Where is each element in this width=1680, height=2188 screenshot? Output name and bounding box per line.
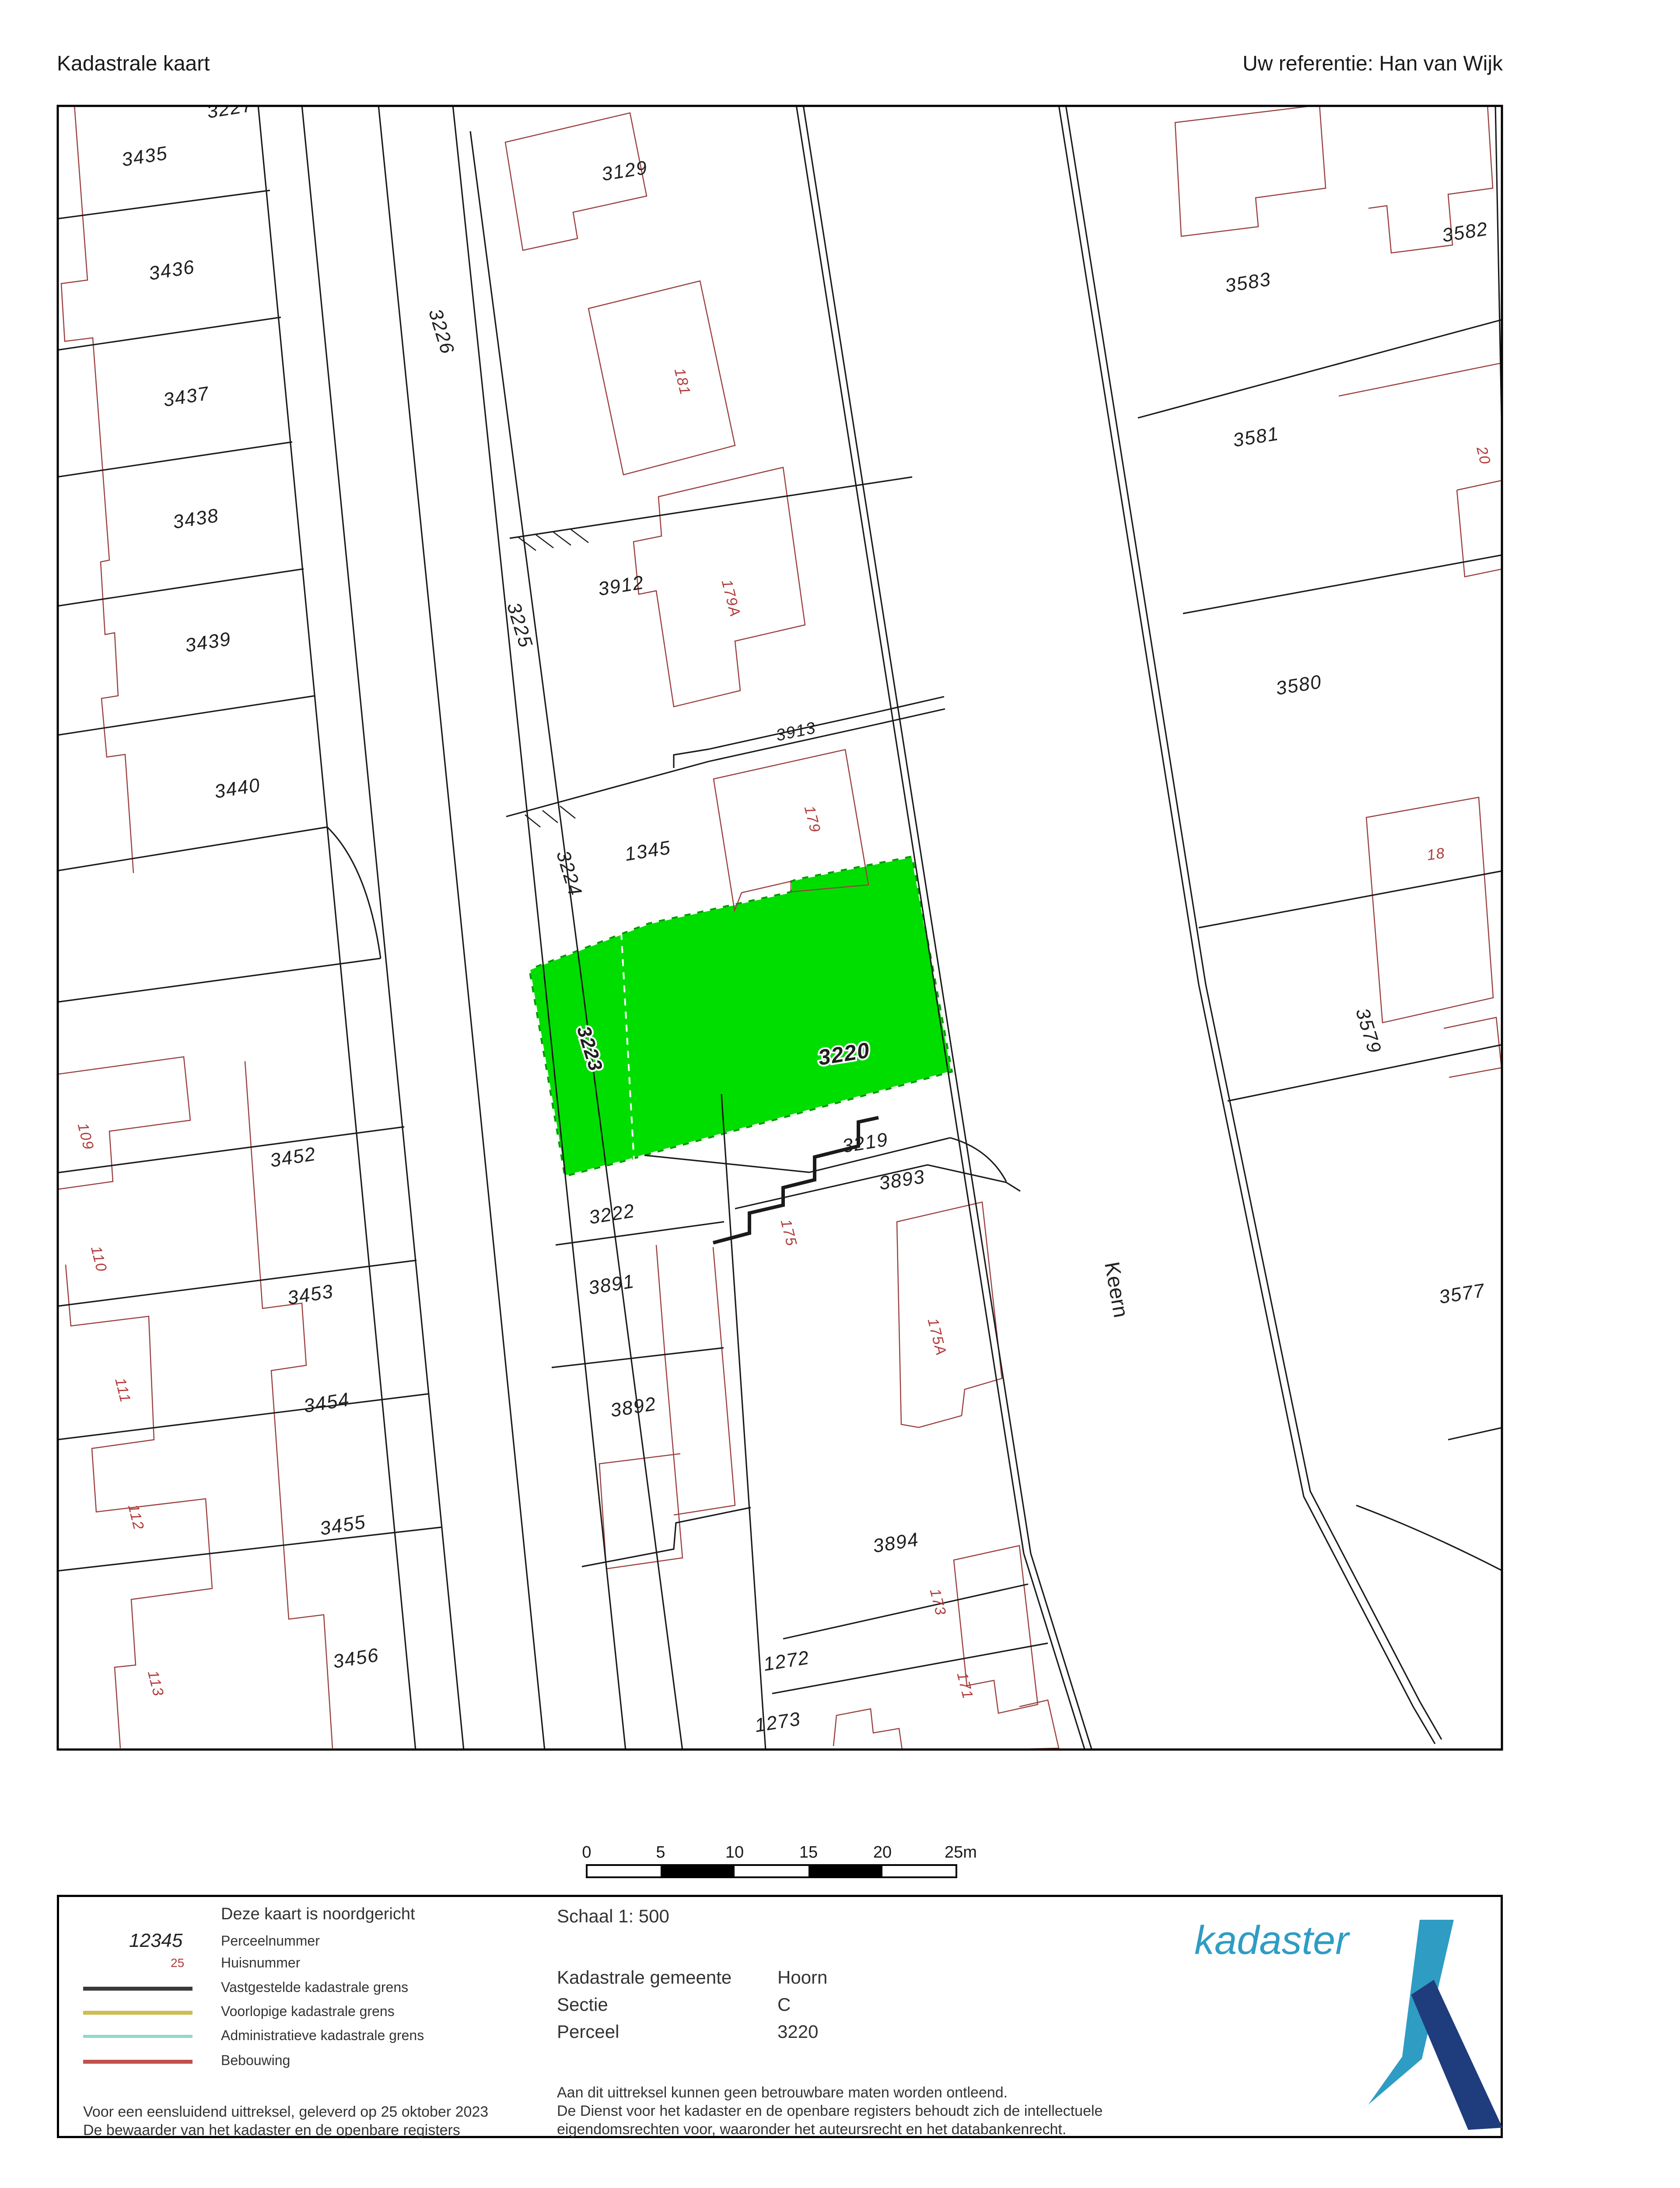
- parcel-number-label: 3222: [588, 1200, 637, 1228]
- logo-mark-blue: [1411, 1980, 1503, 2130]
- cadastral-extract-page: { "header": { "title": "Kadastrale kaart…: [0, 0, 1680, 2188]
- street-name-label: Keern: [1100, 1260, 1132, 1319]
- parcel-field-label: Perceel: [557, 2021, 619, 2042]
- parcel-number-label: 1345: [623, 837, 672, 865]
- parcel-number-label: 1273: [753, 1708, 802, 1736]
- parcel-number-label: 3893: [878, 1166, 927, 1194]
- house-number-label: 18: [1426, 845, 1446, 863]
- house-number-label: 113: [144, 1669, 167, 1699]
- legend-box: Deze kaart is noordgericht 12345 Perceel…: [57, 1895, 1503, 2138]
- section-value: C: [777, 1994, 791, 2015]
- kadaster-logo-svg: kadaster: [1170, 1906, 1503, 2138]
- house-number-label: 112: [125, 1503, 147, 1532]
- provisional-boundary-label: Voorlopige kadastrale grens: [221, 2003, 395, 2020]
- house-number-label: 109: [74, 1121, 97, 1152]
- parcel-number-sample: 12345: [129, 1930, 182, 1952]
- house-number-label: 175A: [924, 1316, 950, 1357]
- parcel-number-label: 3226: [424, 306, 458, 357]
- scale-tick-label: 5: [656, 1843, 665, 1862]
- issued-line2: De bewaarder van het kadaster en de open…: [83, 2122, 460, 2139]
- parcel-number-label: 3912: [597, 572, 646, 600]
- parcel-number-label: 3454: [302, 1389, 351, 1417]
- parcel-number-label: 3453: [286, 1280, 335, 1309]
- established-boundary-label: Vastgestelde kadastrale grens: [221, 1979, 408, 1995]
- house-number-label: 173: [927, 1587, 949, 1617]
- scale-tick-label: 20: [873, 1843, 892, 1862]
- parcel-number-label: 3892: [609, 1393, 658, 1421]
- parcel-number-label: 3452: [269, 1143, 318, 1171]
- parcel-number-label: 3439: [184, 628, 233, 656]
- parcel-number-label: 3580: [1274, 671, 1323, 699]
- scale-tick-label: 10: [725, 1843, 744, 1862]
- disclaimer-line2: De Dienst voor het kadaster en de openba…: [557, 2103, 1102, 2120]
- map-svg: 3227343534363437343834393440345234533454…: [0, 0, 1680, 1895]
- scale-tick-label: 25m: [945, 1843, 977, 1862]
- house-number-label: 20: [1473, 444, 1494, 466]
- parcel-number-label: 3577: [1438, 1280, 1487, 1308]
- parcel-number-label: 3913: [774, 719, 818, 745]
- parcel-number-label: 3455: [318, 1511, 367, 1539]
- scale-bar: 0510152025m: [582, 1843, 977, 1877]
- parcel-number-label: 3894: [871, 1529, 920, 1557]
- parcel-number-label: 3581: [1232, 423, 1281, 451]
- parcel-number-label: 3891: [587, 1270, 636, 1299]
- parcel-number-label: 3129: [600, 157, 649, 185]
- issued-line1: Voor een eensluidend uittreksel, gelever…: [83, 2104, 488, 2121]
- disclaimer-line3: eigendomsrechten voor, waaronder het aut…: [557, 2121, 1066, 2138]
- house-number-label: 175: [777, 1217, 800, 1248]
- house-number-label: 111: [112, 1376, 134, 1405]
- administrative-boundary-label: Administratieve kadastrale grens: [221, 2027, 424, 2044]
- parcel-number-label: 3579: [1351, 1006, 1386, 1056]
- kadaster-logo-text: kadaster: [1194, 1918, 1350, 1963]
- kadaster-logo: kadaster: [1170, 1906, 1503, 2138]
- house-number-label: 171: [954, 1670, 976, 1701]
- disclaimer-line1: Aan dit uittreksel kunnen geen betrouwba…: [557, 2084, 1008, 2101]
- established-boundary-swatch: [83, 1987, 192, 1991]
- parcel-number-label: 3436: [147, 256, 196, 284]
- municipality-value: Hoorn: [777, 1967, 827, 1988]
- cadastral-map: 3227343534363437343834393440345234533454…: [0, 0, 1680, 1897]
- provisional-boundary-swatch: [83, 2011, 192, 2015]
- parcel-number-label: 3456: [332, 1644, 381, 1673]
- parcel-number-label: 3438: [171, 505, 220, 533]
- parcel-number-label: Perceelnummer: [221, 1933, 320, 1949]
- scale-tick-label: 0: [582, 1843, 591, 1862]
- parcel-field-value: 3220: [777, 2021, 818, 2042]
- scale-tick-label: 15: [799, 1843, 818, 1862]
- administrative-boundary-swatch: [83, 2035, 192, 2038]
- section-label: Sectie: [557, 1994, 608, 2015]
- house-number-label: 179A: [718, 578, 744, 619]
- house-number-label: Huisnummer: [221, 1955, 300, 1971]
- house-number-label: 110: [87, 1245, 110, 1274]
- parcel-number-label: 3583: [1224, 268, 1273, 297]
- parcel-number-label: 3582: [1441, 218, 1490, 246]
- parcel-number-label: 3227: [206, 94, 255, 123]
- parcel-number-label: 1272: [762, 1647, 811, 1675]
- parcel-number-label: 3219: [841, 1129, 890, 1157]
- scale-text: Schaal 1: 500: [557, 1906, 669, 1927]
- parcel-number-label: 3440: [213, 774, 262, 803]
- house-number-label: 179: [801, 804, 824, 835]
- house-number-sample: 25: [171, 1956, 184, 1970]
- north-note: Deze kaart is noordgericht: [221, 1905, 415, 1924]
- parcel-number-label: 3437: [162, 382, 211, 411]
- building-swatch: [83, 2060, 192, 2064]
- house-number-label: 181: [671, 366, 694, 397]
- municipality-label: Kadastrale gemeente: [557, 1967, 731, 1988]
- parcel-3220-highlight: [529, 856, 952, 1176]
- parcel-number-label: 3435: [120, 142, 169, 171]
- parcel-number-label: 3224: [552, 848, 586, 899]
- building-label: Bebouwing: [221, 2052, 290, 2069]
